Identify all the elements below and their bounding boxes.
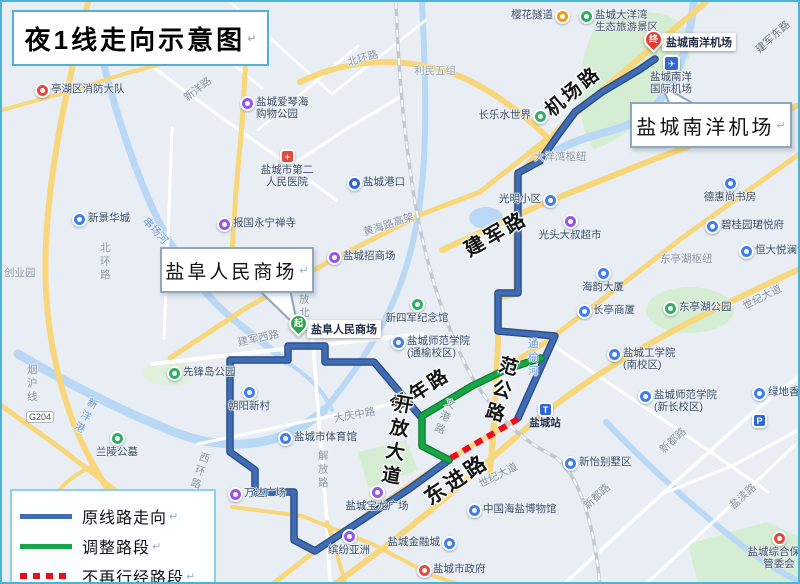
- page-title: 夜1线走向示意图↵: [12, 10, 269, 66]
- park-icon: [663, 301, 678, 316]
- parking-icon: P: [752, 413, 767, 428]
- poi-icon: [579, 9, 594, 24]
- legend-line-green: [20, 544, 72, 549]
- road-badge-g204: G204: [26, 411, 54, 423]
- poi-icon: [240, 96, 255, 111]
- legend: 原线路走向↵ 调整路段↵ 不再行经路段↵: [10, 489, 216, 584]
- poi-icon: [442, 536, 457, 551]
- water-label-tongyuhe: 通榆河: [526, 338, 538, 379]
- poi-icon: [577, 304, 592, 319]
- shop-icon: [563, 214, 578, 229]
- shop-icon: [370, 485, 385, 500]
- legend-line-blue: [20, 514, 72, 519]
- poi-icon: [533, 109, 548, 124]
- area-label-liminwuzu: 利民五组: [414, 66, 456, 78]
- road-label-jiefanglu: 解放路: [316, 450, 328, 491]
- legend-item-removed: 不再行经路段↵: [20, 564, 206, 584]
- park-icon: [167, 366, 182, 381]
- gov-icon: [772, 531, 787, 546]
- poi-icon: [555, 9, 570, 24]
- label-dayangwan-hub: 大洋湾枢纽: [534, 152, 587, 164]
- route-end-label: 盐城南洋机场: [662, 33, 736, 51]
- airplane-icon: ✈: [663, 55, 680, 72]
- route-start-label: 盐阜人民商场: [307, 320, 381, 338]
- temple-icon: [217, 217, 232, 232]
- school-icon: [607, 347, 622, 362]
- legend-item-adjusted: 调整路段↵: [20, 534, 206, 558]
- poi-icon: [110, 431, 125, 446]
- airport-callout: 盐城南洋机场↵: [630, 102, 792, 148]
- poi-icon: [278, 431, 293, 446]
- legend-line-red: [20, 573, 72, 579]
- poi-icon: [563, 456, 578, 471]
- poi-icon: [596, 266, 611, 281]
- poi-icon: [35, 83, 50, 98]
- route-diagram: 机场路 建军路 青年路 开放大道 范公路 东进路 北环路 北环路 利民五组 新洋…: [0, 0, 800, 584]
- museum-icon: [467, 503, 482, 518]
- poi-icon: [242, 385, 257, 400]
- poi-icon: [752, 386, 767, 401]
- hospital-icon: +: [280, 149, 295, 164]
- legend-item-original: 原线路走向↵: [20, 504, 206, 528]
- mall-callout: 盐阜人民商场↵: [160, 247, 314, 293]
- poi-icon: [327, 250, 342, 265]
- road-label-yanhuxian: 烟沪线: [25, 364, 37, 405]
- gov-icon: [417, 563, 432, 578]
- school-icon: [391, 335, 406, 350]
- anchor-icon: [347, 176, 362, 191]
- school-icon: [638, 389, 653, 404]
- road-label-beihuanlu-2: 北环路: [98, 242, 110, 283]
- label-dongtinghu-hub: 东亭湖枢纽: [660, 254, 713, 266]
- poi-icon: [705, 219, 720, 234]
- memorial-icon: [410, 297, 425, 312]
- train-icon: T: [538, 402, 553, 417]
- poi-icon: [72, 212, 87, 227]
- poi-icon: [723, 176, 738, 191]
- area-label-chuangyeyuan: 创业园: [4, 268, 36, 280]
- poi-icon: [739, 244, 754, 259]
- poi-icon: [543, 193, 558, 208]
- shop-icon: [342, 529, 357, 544]
- shop-icon: [228, 487, 243, 502]
